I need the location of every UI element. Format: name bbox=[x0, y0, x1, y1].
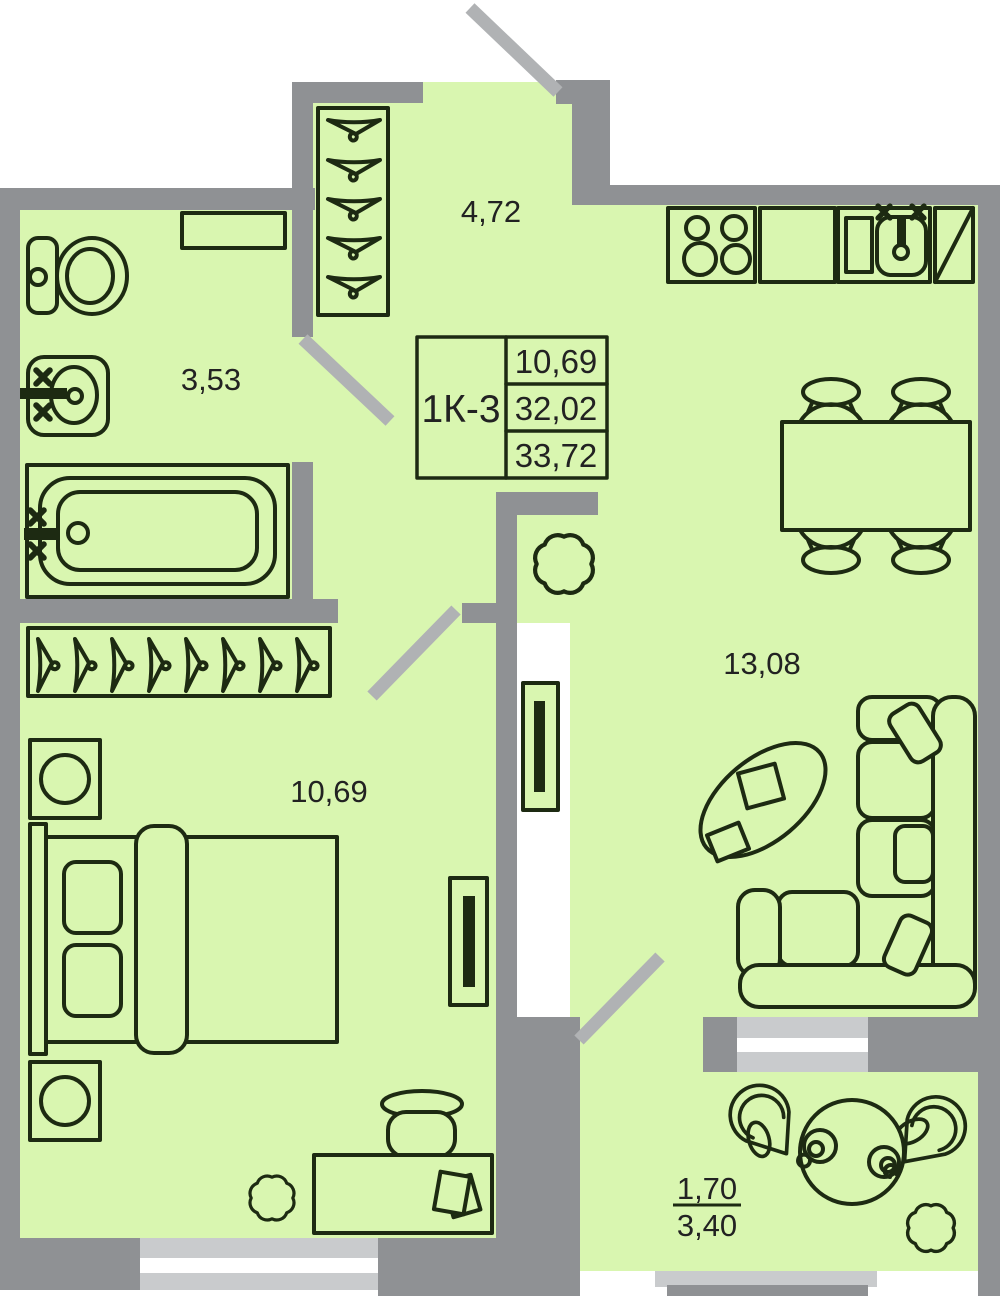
glazing-sill bbox=[667, 1285, 868, 1296]
wall-bathroom-right-lower bbox=[292, 462, 313, 623]
wall-kitchen-top bbox=[572, 185, 1000, 205]
unit-label: 1К-3 bbox=[421, 388, 500, 431]
wall-bedroom-living bbox=[496, 492, 517, 1040]
area-value-total: 33,72 bbox=[515, 437, 598, 474]
wall-left-outer bbox=[0, 188, 20, 1290]
bed-icon bbox=[30, 824, 337, 1054]
wall-hall-top bbox=[292, 82, 423, 103]
glazing-glass bbox=[580, 1271, 655, 1287]
entry-door-leaf bbox=[470, 8, 558, 92]
kitchen-living-area-label: 13,08 bbox=[723, 646, 801, 681]
floor-plan-page: 1К-3 10,69 32,02 33,72 bbox=[0, 0, 1000, 1296]
title-block: 1К-3 10,69 32,02 33,72 bbox=[417, 337, 607, 478]
bathroom-area-label: 3,53 bbox=[181, 362, 241, 397]
window-frame bbox=[737, 1052, 868, 1072]
window-frame bbox=[140, 1238, 378, 1258]
window-frame bbox=[140, 1273, 378, 1290]
balcony-full-area-label: 3,40 bbox=[677, 1208, 737, 1243]
wall-living-stub bbox=[496, 492, 598, 515]
wall-balcony-left bbox=[496, 1017, 580, 1296]
radiator-living bbox=[523, 683, 558, 810]
dining-table bbox=[782, 422, 970, 530]
window-frame bbox=[737, 1017, 868, 1038]
area-value-apartment: 32,02 bbox=[515, 390, 598, 427]
wall-bathroom-top bbox=[0, 188, 315, 210]
hall-area-label: 4,72 bbox=[461, 194, 521, 229]
floor-balcony bbox=[578, 1040, 978, 1273]
radiator-bedroom bbox=[450, 878, 487, 1005]
glazing-glass bbox=[877, 1271, 978, 1287]
wall-balcony-right bbox=[868, 1017, 978, 1072]
bedroom-area-label: 10,69 bbox=[290, 774, 368, 809]
balcony-glazing bbox=[580, 1271, 978, 1296]
window-living-balcony bbox=[737, 1017, 868, 1072]
floor-plan-svg: 1К-3 10,69 32,02 33,72 bbox=[0, 0, 1000, 1296]
wall-bedroom-bottom-right bbox=[378, 1238, 497, 1296]
washbasin-icon bbox=[20, 357, 108, 435]
wall-bathroom-bottom bbox=[0, 599, 338, 623]
balcony-table bbox=[800, 1100, 904, 1204]
wall-entry-right bbox=[556, 80, 610, 104]
wall-hall-left bbox=[292, 82, 313, 337]
area-value-living: 10,69 bbox=[515, 343, 598, 380]
window-bedroom bbox=[140, 1238, 378, 1290]
wall-bedroom-bottom-left bbox=[0, 1238, 140, 1290]
wall-bedroom-door-stub bbox=[462, 603, 496, 623]
papers-icon bbox=[434, 1172, 480, 1217]
wall-right-outer bbox=[978, 185, 1000, 1296]
floor-entry bbox=[422, 82, 557, 103]
balcony-reduced-area-label: 1,70 bbox=[677, 1171, 737, 1206]
window-glass bbox=[140, 1258, 378, 1273]
wall-balcony-jamb bbox=[703, 1017, 737, 1072]
window-glass bbox=[737, 1038, 868, 1052]
